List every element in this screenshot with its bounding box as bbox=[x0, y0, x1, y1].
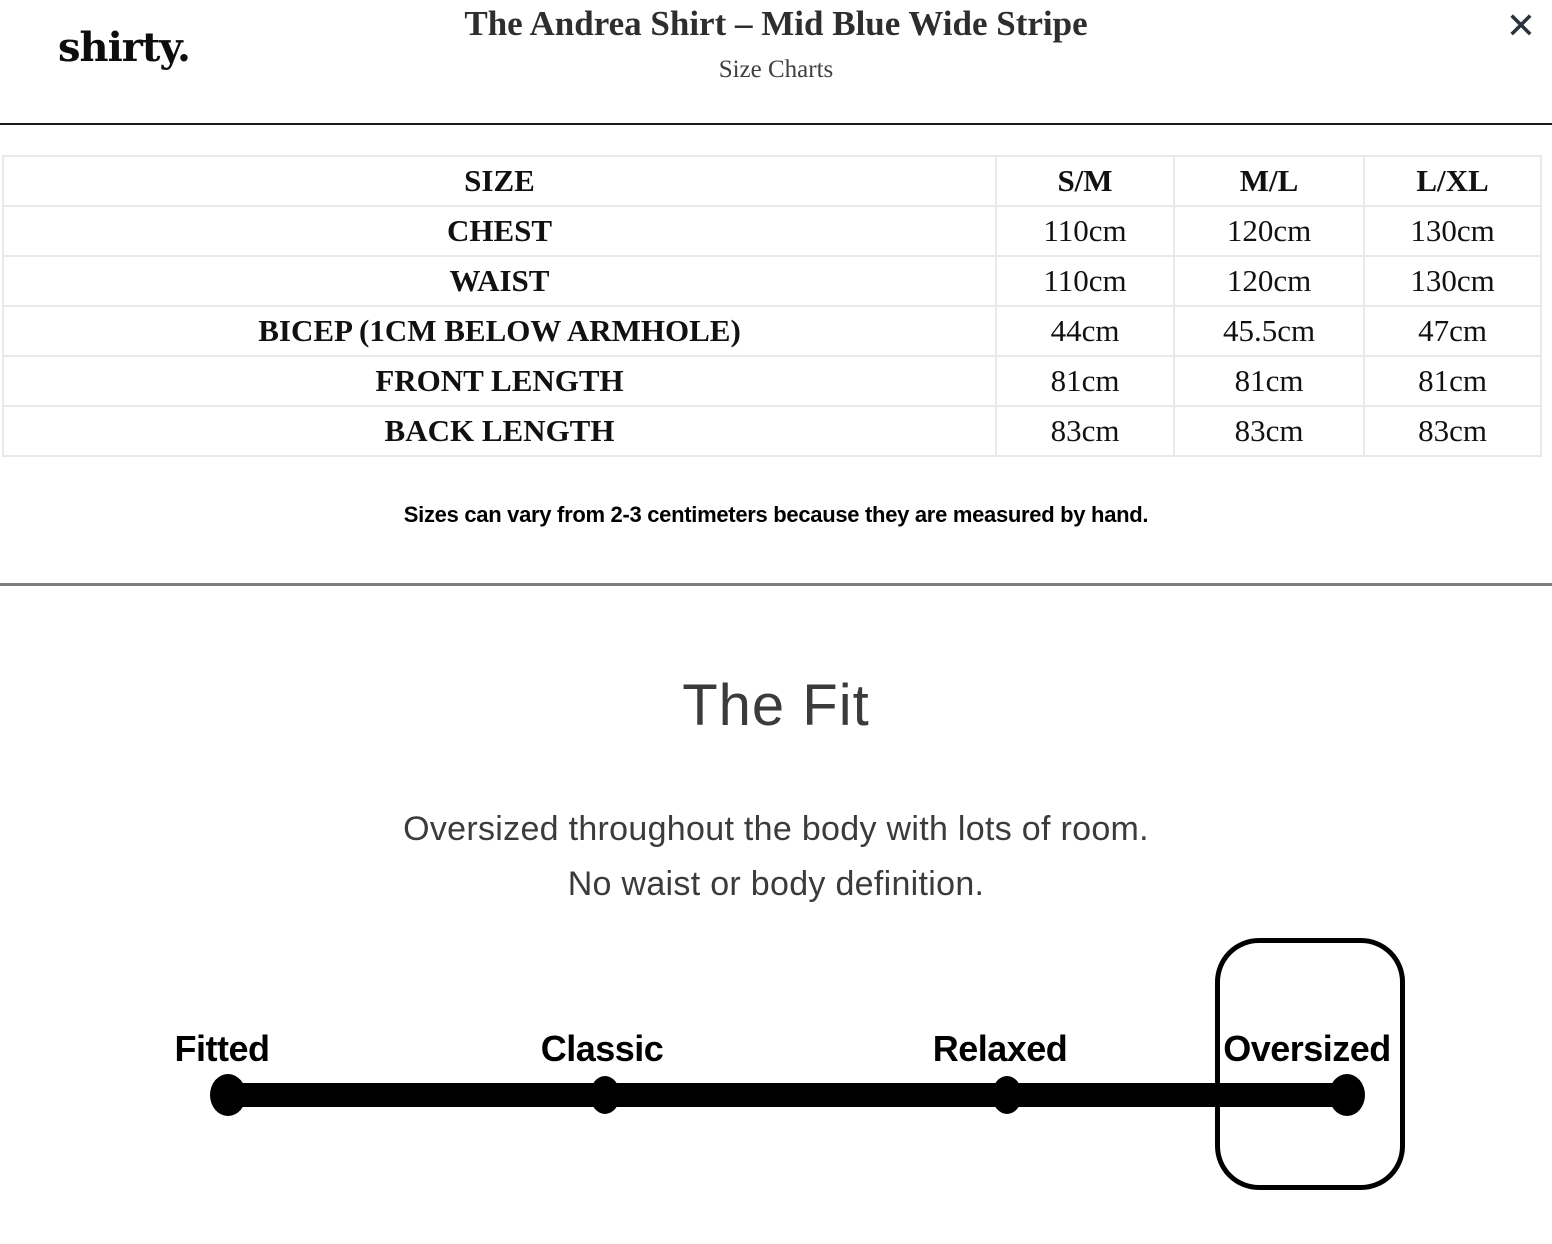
fit-scale-label-fitted: Fitted bbox=[122, 1028, 322, 1070]
cell-value: 120cm bbox=[1174, 206, 1364, 256]
cell-value: 44cm bbox=[996, 306, 1174, 356]
column-header-ml: M/L bbox=[1174, 156, 1364, 206]
table-row: WAIST 110cm 120cm 130cm bbox=[3, 256, 1541, 306]
modal-subtitle: Size Charts bbox=[0, 56, 1552, 84]
fit-description: Oversized throughout the body with lots … bbox=[0, 802, 1552, 912]
table-row: BICEP (1CM BELOW ARMHOLE) 44cm 45.5cm 47… bbox=[3, 306, 1541, 356]
header-divider bbox=[0, 123, 1552, 125]
cell-value: 81cm bbox=[996, 356, 1174, 406]
table-row: FRONT LENGTH 81cm 81cm 81cm bbox=[3, 356, 1541, 406]
cell-value: 47cm bbox=[1364, 306, 1541, 356]
fit-dot-classic bbox=[590, 1076, 620, 1114]
column-header-size: SIZE bbox=[3, 156, 996, 206]
fit-scale-label-classic: Classic bbox=[502, 1028, 702, 1070]
fit-section-heading: The Fit bbox=[0, 672, 1552, 739]
cell-value: 83cm bbox=[1364, 406, 1541, 456]
measurement-note: Sizes can vary from 2-3 centimeters beca… bbox=[0, 502, 1552, 528]
cell-value: 120cm bbox=[1174, 256, 1364, 306]
cell-value: 81cm bbox=[1364, 356, 1541, 406]
column-header-sm: S/M bbox=[996, 156, 1174, 206]
table-row: BACK LENGTH 83cm 83cm 83cm bbox=[3, 406, 1541, 456]
fit-scale-label-relaxed: Relaxed bbox=[900, 1028, 1100, 1070]
cell-value: 45.5cm bbox=[1174, 306, 1364, 356]
cell-value: 110cm bbox=[996, 256, 1174, 306]
cell-value: 110cm bbox=[996, 206, 1174, 256]
section-divider bbox=[0, 583, 1552, 586]
cell-value: 130cm bbox=[1364, 256, 1541, 306]
table-row: CHEST 110cm 120cm 130cm bbox=[3, 206, 1541, 256]
size-chart-table: SIZE S/M M/L L/XL CHEST 110cm 120cm 130c… bbox=[2, 155, 1542, 457]
table-header-row: SIZE S/M M/L L/XL bbox=[3, 156, 1541, 206]
fit-description-line1: Oversized throughout the body with lots … bbox=[0, 802, 1552, 857]
column-header-lxl: L/XL bbox=[1364, 156, 1541, 206]
close-button[interactable]: ✕ bbox=[1494, 0, 1548, 54]
close-icon: ✕ bbox=[1506, 9, 1536, 45]
row-label-front-length: FRONT LENGTH bbox=[3, 356, 996, 406]
fit-dot-oversized bbox=[1329, 1074, 1365, 1116]
cell-value: 83cm bbox=[1174, 406, 1364, 456]
product-title: The Andrea Shirt – Mid Blue Wide Stripe bbox=[0, 4, 1552, 44]
row-label-back-length: BACK LENGTH bbox=[3, 406, 996, 456]
row-label-chest: CHEST bbox=[3, 206, 996, 256]
row-label-bicep: BICEP (1CM BELOW ARMHOLE) bbox=[3, 306, 996, 356]
fit-dot-fitted bbox=[210, 1074, 246, 1116]
fit-scale-bar bbox=[216, 1083, 1362, 1107]
fit-scale-label-oversized: Oversized bbox=[1207, 1028, 1407, 1070]
fit-dot-relaxed bbox=[992, 1076, 1022, 1114]
size-chart-modal: shirty. The Andrea Shirt – Mid Blue Wide… bbox=[0, 0, 1552, 1244]
fit-description-line2: No waist or body definition. bbox=[0, 857, 1552, 912]
cell-value: 81cm bbox=[1174, 356, 1364, 406]
cell-value: 130cm bbox=[1364, 206, 1541, 256]
cell-value: 83cm bbox=[996, 406, 1174, 456]
row-label-waist: WAIST bbox=[3, 256, 996, 306]
